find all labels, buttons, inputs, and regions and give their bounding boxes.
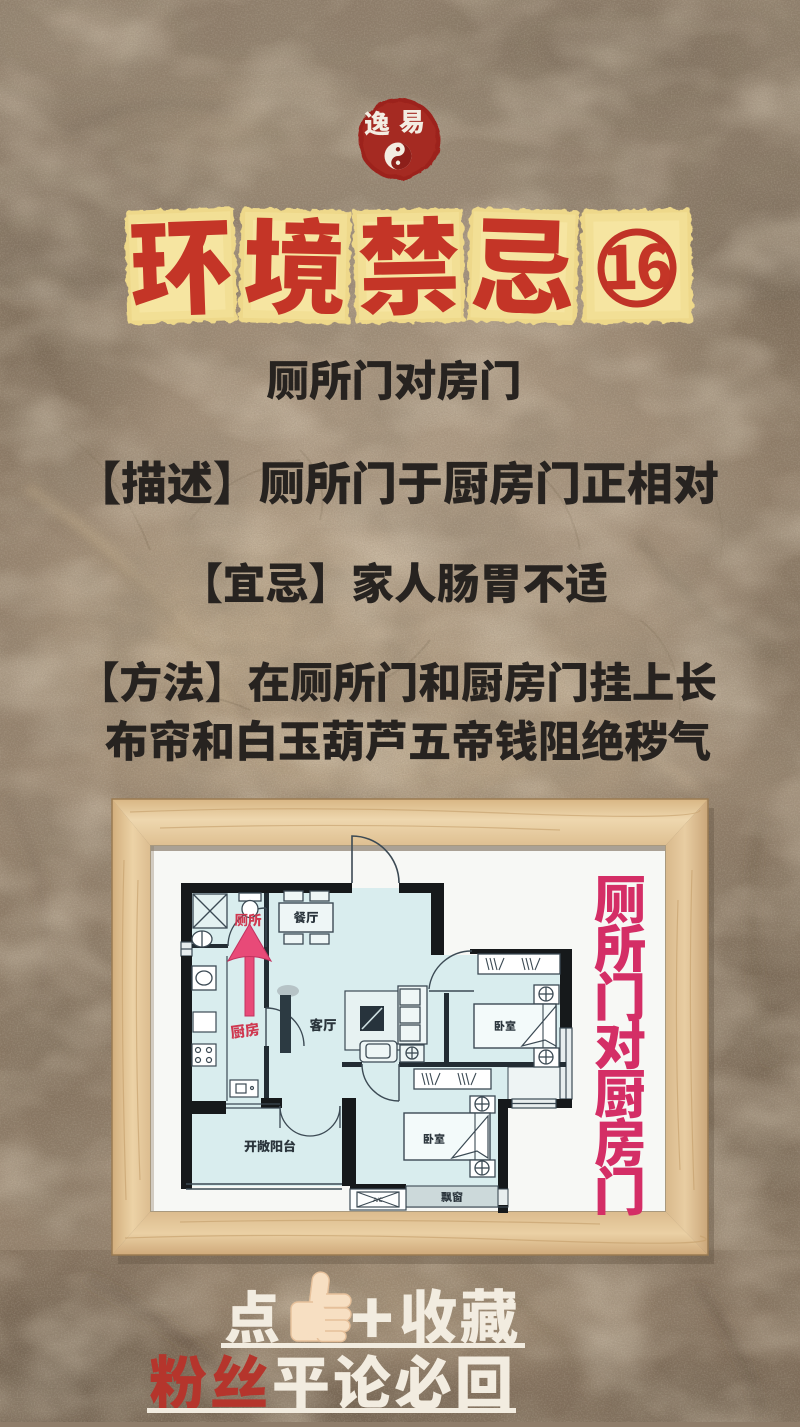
svg-text:A/C: A/C [373,1198,384,1204]
